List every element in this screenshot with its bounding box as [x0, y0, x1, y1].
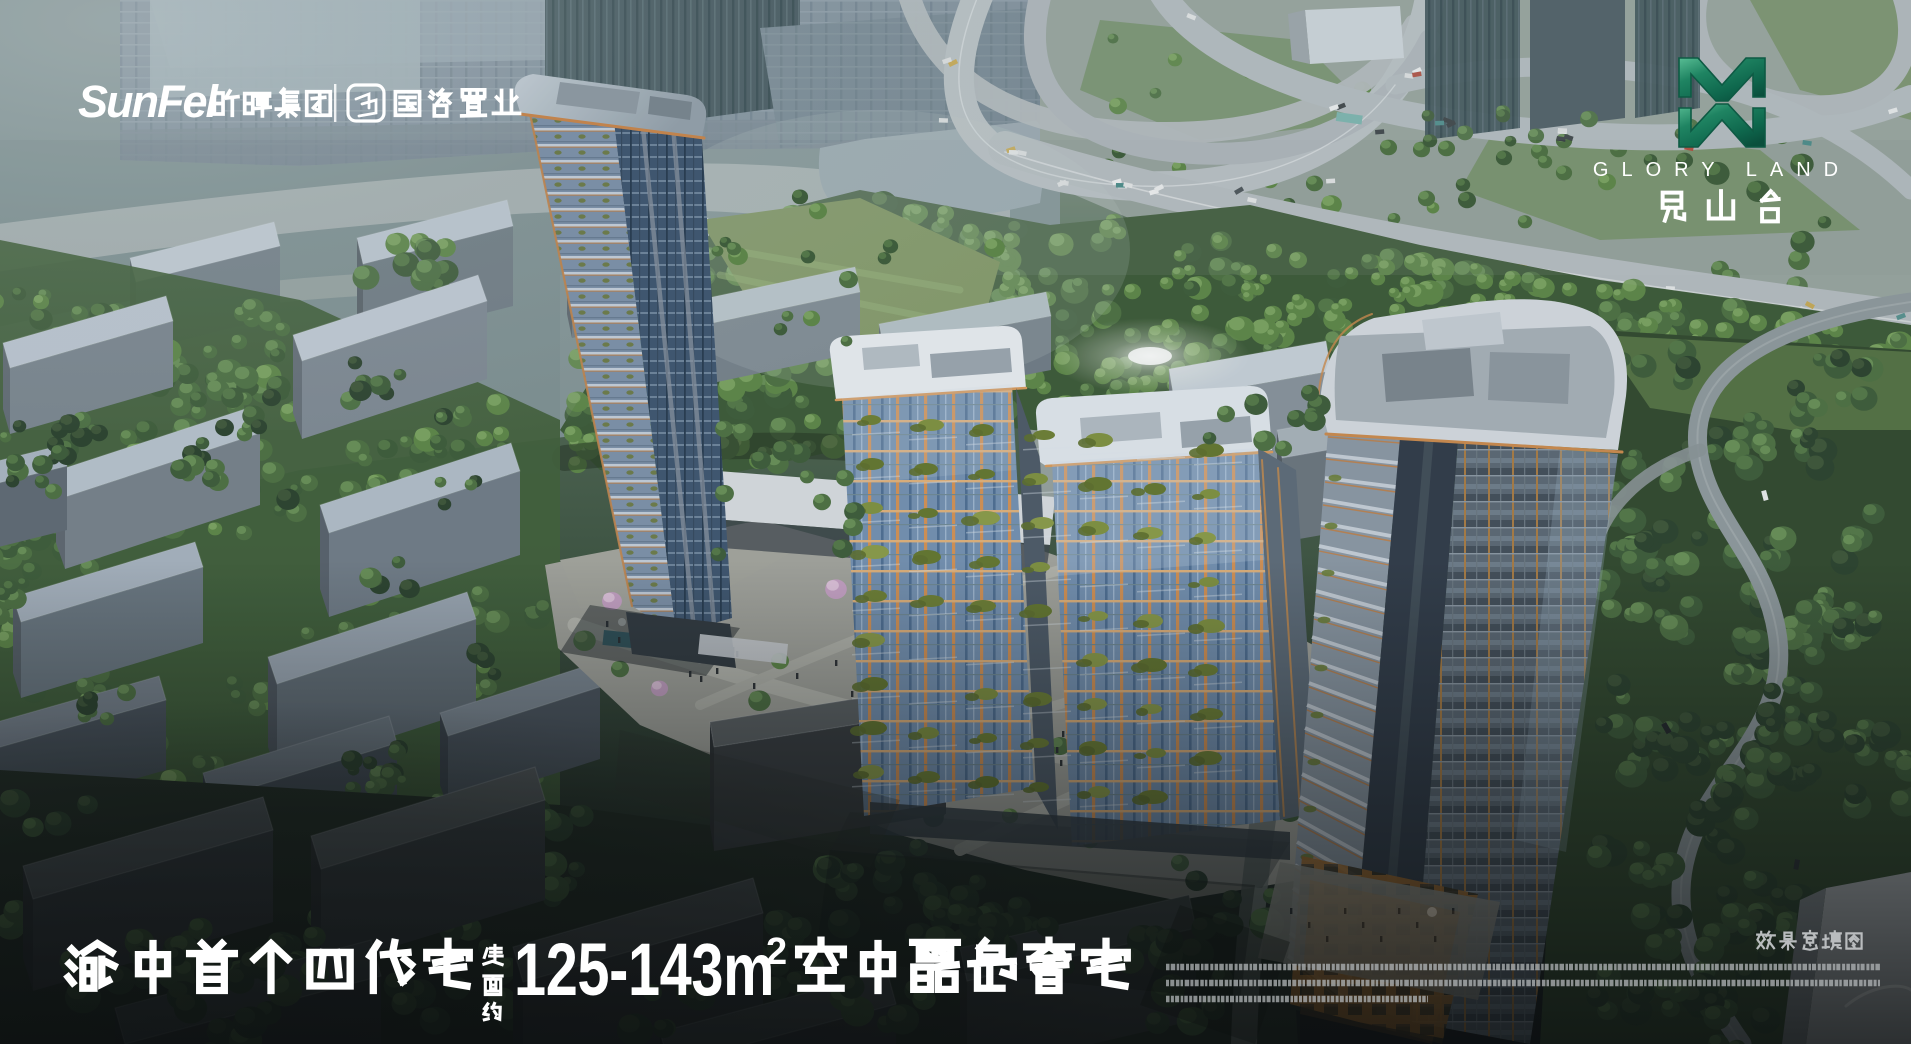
svg-text:125-143m: 125-143m — [514, 929, 774, 1012]
svg-text:GLORY LAND: GLORY LAND — [1593, 159, 1851, 181]
svg-text:2: 2 — [766, 931, 787, 973]
svg-text:SunFel: SunFel — [78, 76, 220, 127]
